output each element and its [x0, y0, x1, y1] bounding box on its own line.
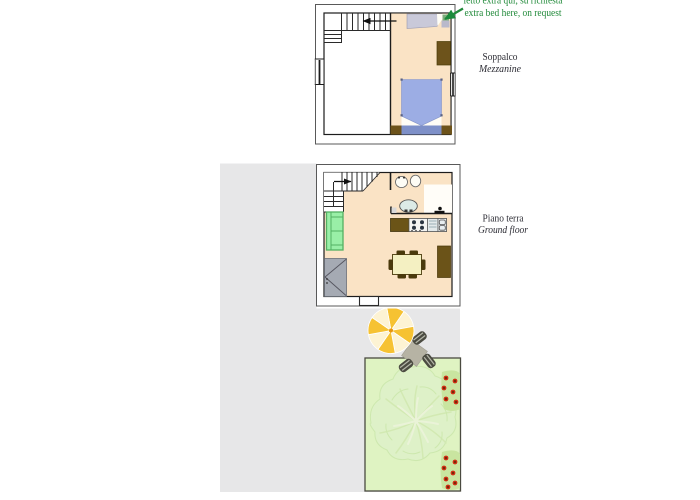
svg-text:Ground floor: Ground floor: [478, 225, 529, 236]
svg-text:Mezzanine: Mezzanine: [478, 64, 521, 75]
svg-text:letto extra qui, su richiesta: letto extra qui, su richiesta: [464, 0, 563, 7]
svg-text:Soppalco: Soppalco: [483, 52, 518, 63]
svg-text:extra bed here, on request: extra bed here, on request: [465, 8, 562, 19]
svg-text:Piano terra: Piano terra: [483, 214, 524, 225]
